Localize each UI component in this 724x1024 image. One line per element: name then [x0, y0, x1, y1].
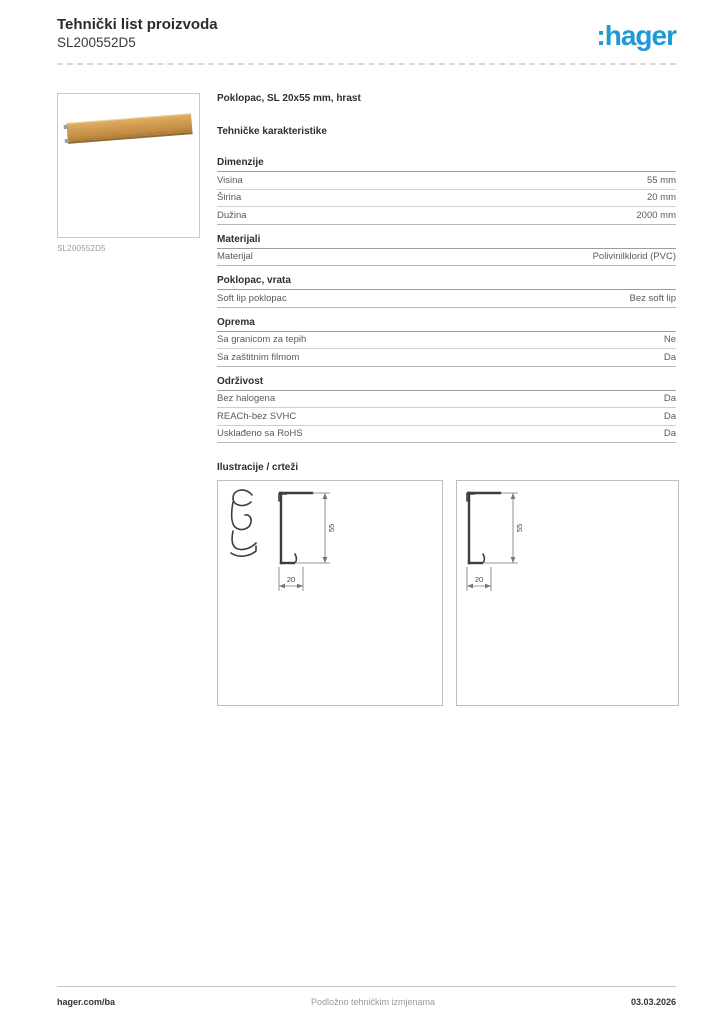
section-title: Oprema — [217, 317, 676, 332]
product-name: Poklopac, SL 20x55 mm, hrast — [217, 93, 676, 104]
spec-value: Da — [664, 411, 676, 422]
cover-profile — [279, 493, 312, 563]
technical-drawing-2: 55 20 — [456, 480, 679, 706]
dim-height-label: 55 — [515, 524, 524, 532]
spec-value: 55 mm — [647, 175, 676, 186]
footer: hager.com/ba Podložno tehničkim izmjenam… — [57, 986, 676, 1007]
header: Tehnički list proizvoda SL200552D5 :hage… — [57, 16, 676, 51]
spec-value: Da — [664, 393, 676, 404]
spec-section: OdrživostBez halogenaDaREACh-bez SVHCDaU… — [217, 376, 676, 444]
spec-section: OpremaSa granicom za tepihNeSa zaštitnim… — [217, 317, 676, 367]
spec-label: Sa granicom za tepih — [217, 334, 306, 345]
technical-drawing-1: 55 20 — [217, 480, 443, 706]
spec-label: Visina — [217, 175, 243, 186]
logo-colon: : — [596, 20, 604, 51]
dimension-height: 55 — [484, 493, 524, 563]
spec-label: Soft lip poklopac — [217, 293, 287, 304]
spec-label: REACh-bez SVHC — [217, 411, 296, 422]
spec-value: Da — [664, 352, 676, 363]
spec-value: Da — [664, 428, 676, 439]
oak-cover-strip-graphic — [66, 113, 192, 144]
spec-row: REACh-bez SVHCDa — [217, 408, 676, 426]
spec-row: MaterijalPolivinilklorid (PVC) — [217, 249, 676, 267]
footer-disclaimer: Podložno tehničkim izmjenama — [311, 997, 435, 1007]
main-content: Poklopac, SL 20x55 mm, hrast Tehničke ka… — [217, 93, 676, 706]
hager-logo: :hager — [596, 22, 676, 50]
spec-label: Usklađeno sa RoHS — [217, 428, 303, 439]
spec-value: Polivinilklorid (PVC) — [593, 251, 676, 262]
product-id: SL200552D5 — [57, 34, 676, 51]
spec-label: Dužina — [217, 210, 247, 221]
spec-label: Bez halogena — [217, 393, 275, 404]
dim-width-label: 20 — [287, 575, 295, 584]
dimension-width: 20 — [467, 567, 491, 591]
spec-row: Visina55 mm — [217, 172, 676, 190]
section-title: Materijali — [217, 234, 676, 249]
spec-section: Poklopac, vrataSoft lip poklopacBez soft… — [217, 275, 676, 308]
spec-row: Dužina2000 mm — [217, 207, 676, 225]
clip-profile-glyph — [231, 490, 256, 556]
footer-website: hager.com/ba — [57, 997, 115, 1007]
page-title: Tehnički list proizvoda — [57, 16, 676, 34]
spec-label: Sa zaštitnim filmom — [217, 352, 299, 363]
spec-row: Sa zaštitnim filmomDa — [217, 349, 676, 367]
spec-section: DimenzijeVisina55 mmŠirina20 mmDužina200… — [217, 157, 676, 225]
spec-row: Soft lip poklopacBez soft lip — [217, 290, 676, 308]
spec-label: Širina — [217, 192, 241, 203]
profile-drawing-1: 55 20 — [218, 481, 442, 705]
product-image-caption: SL200552D5 — [57, 244, 106, 253]
logo-wordmark: hager — [605, 20, 676, 51]
dimension-width: 20 — [279, 567, 303, 591]
illustrations-row: 55 20 — [217, 480, 676, 706]
spec-row: Usklađeno sa RoHSDa — [217, 426, 676, 444]
spec-value: Bez soft lip — [630, 293, 676, 304]
spec-sections: DimenzijeVisina55 mmŠirina20 mmDužina200… — [217, 157, 676, 443]
profile-drawing-2: 55 20 — [457, 481, 678, 705]
spec-value: 20 mm — [647, 192, 676, 203]
datasheet-page: Tehnički list proizvoda SL200552D5 :hage… — [0, 0, 724, 1024]
spec-row: Bez halogenaDa — [217, 391, 676, 409]
spec-section: MaterijaliMaterijalPolivinilklorid (PVC) — [217, 234, 676, 267]
illustrations-heading: Ilustracije / crteži — [217, 462, 676, 473]
section-title: Dimenzije — [217, 157, 676, 172]
product-image — [57, 93, 200, 238]
section-title: Održivost — [217, 376, 676, 391]
dimension-height: 55 — [296, 493, 336, 563]
spec-label: Materijal — [217, 251, 253, 262]
spec-row: Širina20 mm — [217, 190, 676, 208]
dim-width-label: 20 — [475, 575, 483, 584]
cover-profile — [467, 493, 500, 563]
spec-row: Sa granicom za tepihNe — [217, 332, 676, 350]
header-divider — [57, 63, 676, 65]
spec-value: 2000 mm — [636, 210, 676, 221]
spec-value: Ne — [664, 334, 676, 345]
footer-date: 03.03.2026 — [631, 997, 676, 1007]
section-title: Poklopac, vrata — [217, 275, 676, 290]
dim-height-label: 55 — [327, 524, 336, 532]
characteristics-heading: Tehničke karakteristike — [217, 126, 676, 137]
